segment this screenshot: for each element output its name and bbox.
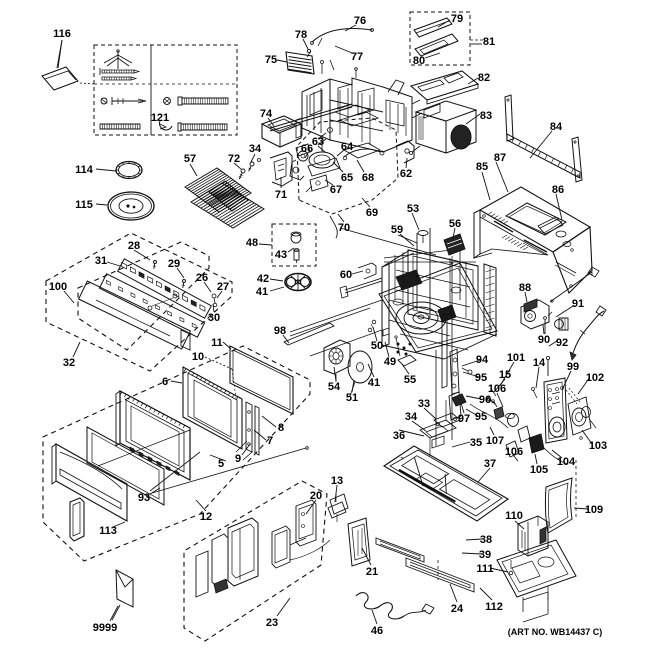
svg-text:104: 104 <box>557 456 576 468</box>
svg-text:98: 98 <box>274 325 286 337</box>
svg-text:24: 24 <box>451 603 464 615</box>
svg-text:116: 116 <box>53 28 71 40</box>
svg-text:121: 121 <box>151 112 169 124</box>
svg-text:36: 36 <box>393 430 405 442</box>
svg-text:102: 102 <box>586 372 604 384</box>
svg-text:72: 72 <box>228 153 240 165</box>
svg-text:28: 28 <box>128 240 140 252</box>
svg-text:46: 46 <box>371 625 383 637</box>
svg-text:29: 29 <box>168 258 180 270</box>
svg-text:66: 66 <box>301 143 313 155</box>
svg-text:49: 49 <box>384 356 396 368</box>
svg-text:110: 110 <box>505 510 523 522</box>
svg-text:86: 86 <box>552 184 564 196</box>
svg-text:114: 114 <box>75 164 94 176</box>
svg-text:99: 99 <box>567 361 579 373</box>
svg-text:94: 94 <box>476 354 489 366</box>
svg-text:7: 7 <box>267 435 273 447</box>
svg-text:106: 106 <box>488 383 506 395</box>
svg-text:80: 80 <box>413 55 425 67</box>
svg-text:57: 57 <box>184 153 196 165</box>
svg-text:71: 71 <box>275 189 287 201</box>
svg-text:67: 67 <box>330 184 342 196</box>
svg-text:41: 41 <box>368 377 380 389</box>
svg-text:34: 34 <box>249 143 262 155</box>
svg-text:55: 55 <box>404 374 416 386</box>
svg-text:26: 26 <box>196 272 208 284</box>
svg-text:91: 91 <box>572 298 584 310</box>
svg-text:6: 6 <box>162 376 168 388</box>
svg-text:113: 113 <box>99 525 117 537</box>
svg-text:23: 23 <box>266 617 278 629</box>
svg-text:30: 30 <box>208 312 220 324</box>
svg-text:97: 97 <box>458 413 470 425</box>
svg-text:34: 34 <box>405 411 418 423</box>
svg-text:56: 56 <box>449 218 461 230</box>
svg-text:11: 11 <box>211 337 223 349</box>
svg-text:78: 78 <box>295 29 307 41</box>
svg-text:87: 87 <box>494 152 506 164</box>
svg-text:8: 8 <box>278 422 284 434</box>
svg-text:9: 9 <box>235 453 241 465</box>
svg-text:35: 35 <box>470 437 482 449</box>
svg-text:95: 95 <box>475 372 487 384</box>
svg-text:111: 111 <box>476 563 493 575</box>
svg-text:59: 59 <box>391 224 403 236</box>
svg-text:62: 62 <box>400 168 412 180</box>
svg-text:69: 69 <box>366 207 378 219</box>
svg-text:100: 100 <box>49 281 67 293</box>
svg-text:75: 75 <box>265 54 277 66</box>
svg-text:96: 96 <box>479 394 491 406</box>
svg-text:76: 76 <box>354 15 366 27</box>
svg-text:13: 13 <box>331 475 343 487</box>
svg-text:9999: 9999 <box>93 622 117 634</box>
svg-text:5: 5 <box>218 458 224 470</box>
svg-text:42: 42 <box>257 273 269 285</box>
svg-text:115: 115 <box>75 199 93 211</box>
svg-text:106: 106 <box>505 446 523 458</box>
svg-text:60: 60 <box>340 269 352 281</box>
svg-text:82: 82 <box>478 72 490 84</box>
svg-text:92: 92 <box>556 337 568 349</box>
svg-text:95: 95 <box>475 411 487 423</box>
svg-text:109: 109 <box>585 504 603 516</box>
svg-text:54: 54 <box>328 381 341 393</box>
svg-text:39: 39 <box>479 549 491 561</box>
svg-text:10: 10 <box>192 351 204 363</box>
svg-text:68: 68 <box>362 172 374 184</box>
svg-text:70: 70 <box>338 222 350 234</box>
svg-text:21: 21 <box>366 566 378 578</box>
svg-text:50: 50 <box>371 340 383 352</box>
svg-text:74: 74 <box>260 108 273 120</box>
svg-text:112: 112 <box>485 601 503 613</box>
svg-text:93: 93 <box>138 492 150 504</box>
svg-text:105: 105 <box>530 464 548 476</box>
svg-text:101: 101 <box>507 352 525 364</box>
svg-text:33: 33 <box>418 398 430 410</box>
svg-text:20: 20 <box>310 490 322 502</box>
svg-text:(ART NO. WB14437 C): (ART NO. WB14437 C) <box>508 627 603 637</box>
svg-text:15: 15 <box>499 369 511 381</box>
svg-text:14: 14 <box>533 357 546 369</box>
svg-text:103: 103 <box>589 440 607 452</box>
svg-text:27: 27 <box>217 281 229 293</box>
svg-text:41: 41 <box>256 286 268 298</box>
svg-text:85: 85 <box>476 161 488 173</box>
svg-text:84: 84 <box>550 121 563 133</box>
svg-text:63: 63 <box>312 136 324 148</box>
svg-text:83: 83 <box>480 110 492 122</box>
svg-text:43: 43 <box>275 249 287 261</box>
svg-text:32: 32 <box>63 357 75 369</box>
svg-text:38: 38 <box>480 534 492 546</box>
svg-text:79: 79 <box>451 13 463 25</box>
svg-text:81: 81 <box>483 36 495 48</box>
svg-text:88: 88 <box>519 282 531 294</box>
svg-text:37: 37 <box>484 458 496 470</box>
svg-text:31: 31 <box>95 255 107 267</box>
svg-text:51: 51 <box>346 392 358 404</box>
svg-text:12: 12 <box>200 511 212 523</box>
svg-text:77: 77 <box>351 51 363 63</box>
svg-text:53: 53 <box>407 203 419 215</box>
svg-text:48: 48 <box>246 237 258 249</box>
svg-text:64: 64 <box>341 141 354 153</box>
svg-text:90: 90 <box>538 334 550 346</box>
svg-text:107: 107 <box>486 435 504 447</box>
svg-text:65: 65 <box>341 172 353 184</box>
